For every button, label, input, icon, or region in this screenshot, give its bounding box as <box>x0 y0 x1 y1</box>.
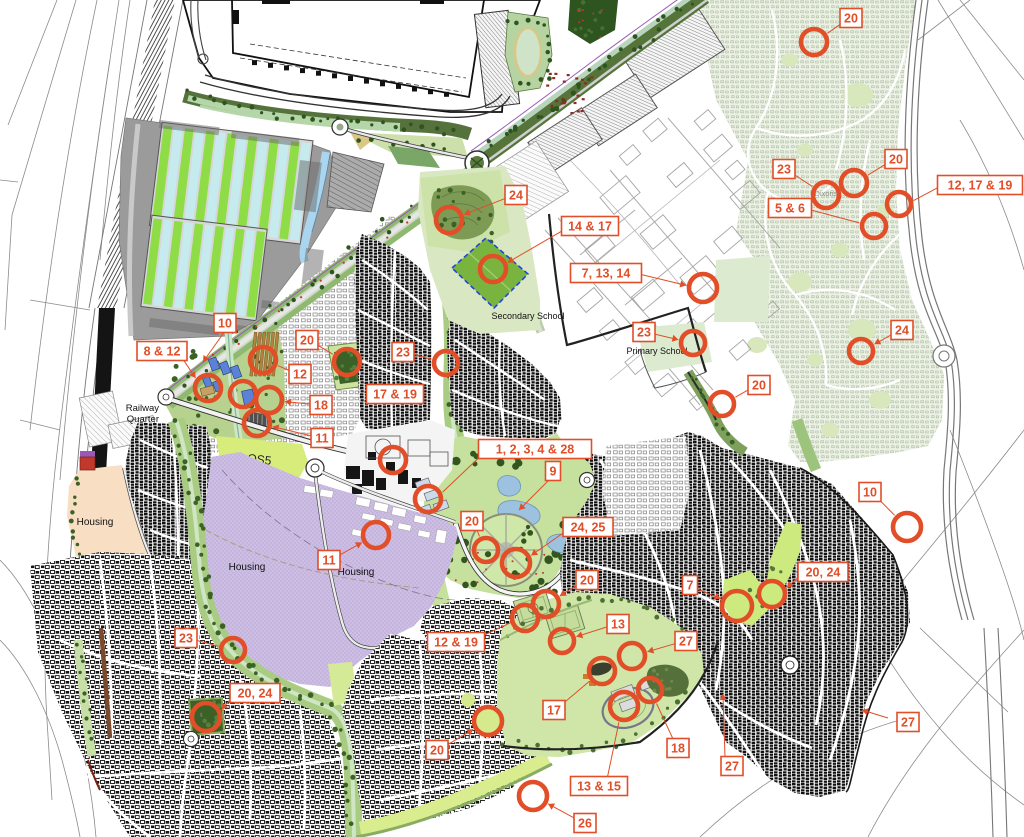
svg-text:20, 24: 20, 24 <box>238 687 273 701</box>
svg-text:20: 20 <box>580 574 594 588</box>
svg-text:10: 10 <box>863 486 877 500</box>
svg-text:23: 23 <box>396 346 410 360</box>
svg-text:20: 20 <box>300 334 314 348</box>
svg-text:20: 20 <box>752 379 766 393</box>
svg-text:Housing: Housing <box>77 517 114 528</box>
svg-text:11: 11 <box>322 554 335 568</box>
svg-text:20: 20 <box>889 153 903 167</box>
svg-text:20: 20 <box>844 12 858 26</box>
svg-text:24: 24 <box>509 189 523 203</box>
svg-text:Secondary School: Secondary School <box>491 311 564 321</box>
svg-text:14 & 17: 14 & 17 <box>568 220 612 234</box>
svg-text:24, 25: 24, 25 <box>571 521 606 535</box>
svg-text:24: 24 <box>895 324 909 338</box>
svg-text:23: 23 <box>179 632 193 646</box>
svg-text:12, 17 & 19: 12, 17 & 19 <box>948 179 1013 193</box>
svg-text:17 & 19: 17 & 19 <box>373 388 417 402</box>
svg-text:10: 10 <box>218 317 232 331</box>
svg-text:11: 11 <box>315 432 328 446</box>
svg-text:Railway: Railway <box>126 403 160 414</box>
svg-text:17: 17 <box>547 704 561 718</box>
svg-text:13: 13 <box>611 618 625 632</box>
svg-text:12 & 19: 12 & 19 <box>434 636 478 650</box>
svg-text:20: 20 <box>465 515 479 529</box>
svg-text:20, 24: 20, 24 <box>806 566 841 580</box>
svg-text:1, 2, 3, 4 & 28: 1, 2, 3, 4 & 28 <box>496 443 575 457</box>
svg-text:23: 23 <box>637 326 651 340</box>
svg-text:Housing: Housing <box>338 567 375 578</box>
svg-text:27: 27 <box>901 716 915 730</box>
svg-text:26: 26 <box>578 817 592 831</box>
svg-text:7, 13, 14: 7, 13, 14 <box>582 267 631 281</box>
svg-text:20: 20 <box>430 744 444 758</box>
svg-text:18: 18 <box>671 742 685 756</box>
svg-text:12: 12 <box>293 368 307 382</box>
svg-text:Dixons: Dixons <box>815 189 838 198</box>
svg-text:Primary School: Primary School <box>626 346 687 356</box>
svg-text:8 & 12: 8 & 12 <box>144 345 181 359</box>
svg-text:27: 27 <box>725 760 739 774</box>
svg-text:Housing: Housing <box>229 562 266 573</box>
svg-text:13 & 15: 13 & 15 <box>577 780 621 794</box>
svg-text:5 & 6: 5 & 6 <box>775 202 805 216</box>
svg-text:9: 9 <box>550 465 557 479</box>
svg-text:23: 23 <box>777 163 791 177</box>
svg-text:27: 27 <box>679 635 693 649</box>
svg-text:7: 7 <box>687 579 694 593</box>
svg-text:18: 18 <box>314 399 328 413</box>
svg-text:Quarter: Quarter <box>127 414 159 425</box>
